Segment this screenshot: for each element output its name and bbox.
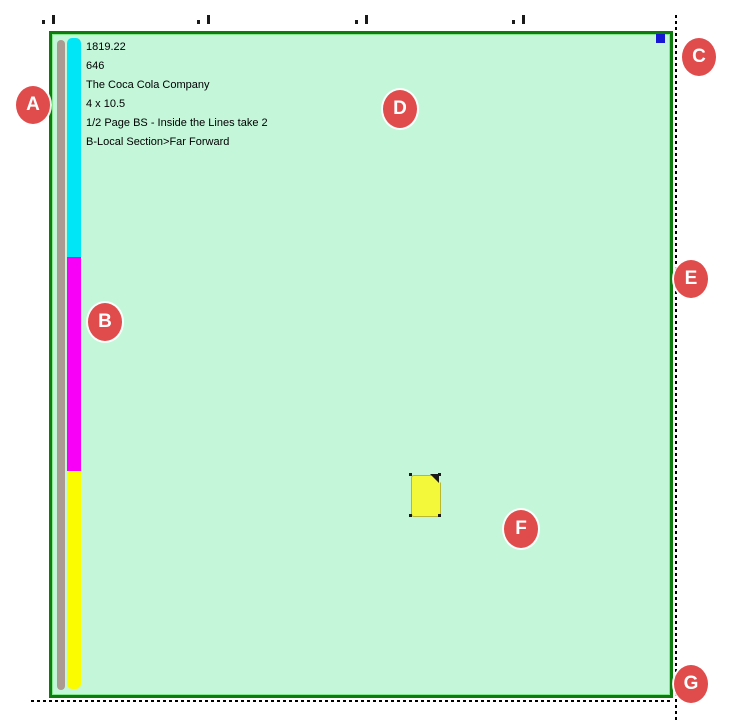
status-segment-cyan: [67, 38, 81, 257]
ad-info-advertiser: The Coca Cola Company: [86, 76, 268, 95]
status-color-bar: [67, 38, 81, 689]
ruler-tick-dot: [512, 20, 515, 24]
ruler-tick-dot: [197, 20, 200, 24]
note-corner-handle[interactable]: [409, 514, 412, 517]
selection-marquee-bottom: [31, 700, 673, 702]
ad-info-price: 1819.22: [86, 38, 268, 57]
ad-info-size: 4 x 10.5: [86, 95, 268, 114]
ad-page[interactable]: 1819.22 646 The Coca Cola Company 4 x 10…: [49, 31, 673, 698]
selection-marquee-right: [675, 15, 677, 722]
ruler-tick-dash: [207, 15, 210, 24]
note-corner-handle[interactable]: [438, 514, 441, 517]
note-corner-handle[interactable]: [438, 473, 441, 476]
status-segment-magenta: [67, 257, 81, 471]
ruler-tick: [355, 15, 369, 25]
selection-handle[interactable]: [656, 34, 665, 43]
callout-badge-e: E: [674, 260, 708, 298]
layout-canvas: 1819.22 646 The Coca Cola Company 4 x 10…: [0, 0, 731, 723]
ruler-tick-dot: [355, 20, 358, 24]
status-segment-yellow: [67, 471, 81, 689]
callout-badge-d: D: [383, 90, 417, 128]
callout-badge-g: G: [674, 665, 708, 703]
ruler-tick: [42, 15, 56, 25]
note-corner-handle[interactable]: [409, 473, 412, 476]
ruler-tick-dot: [42, 20, 45, 24]
ruler-tick-dash: [52, 15, 55, 24]
callout-badge-a: A: [16, 86, 50, 124]
ruler-tick: [197, 15, 211, 25]
ruler-tick-dash: [522, 15, 525, 24]
callout-badge-c: C: [682, 38, 716, 76]
ad-info-description: 1/2 Page BS - Inside the Lines take 2: [86, 114, 268, 133]
callout-badge-f: F: [504, 510, 538, 548]
ruler-tick: [512, 15, 526, 25]
ad-info-text: 1819.22 646 The Coca Cola Company 4 x 10…: [86, 38, 268, 152]
ad-info-number: 646: [86, 57, 268, 76]
ruler-tick-dash: [365, 15, 368, 24]
callout-badge-b: B: [88, 303, 122, 341]
ad-info-placement: B-Local Section>Far Forward: [86, 133, 268, 152]
margin-spine-bar: [57, 40, 65, 690]
